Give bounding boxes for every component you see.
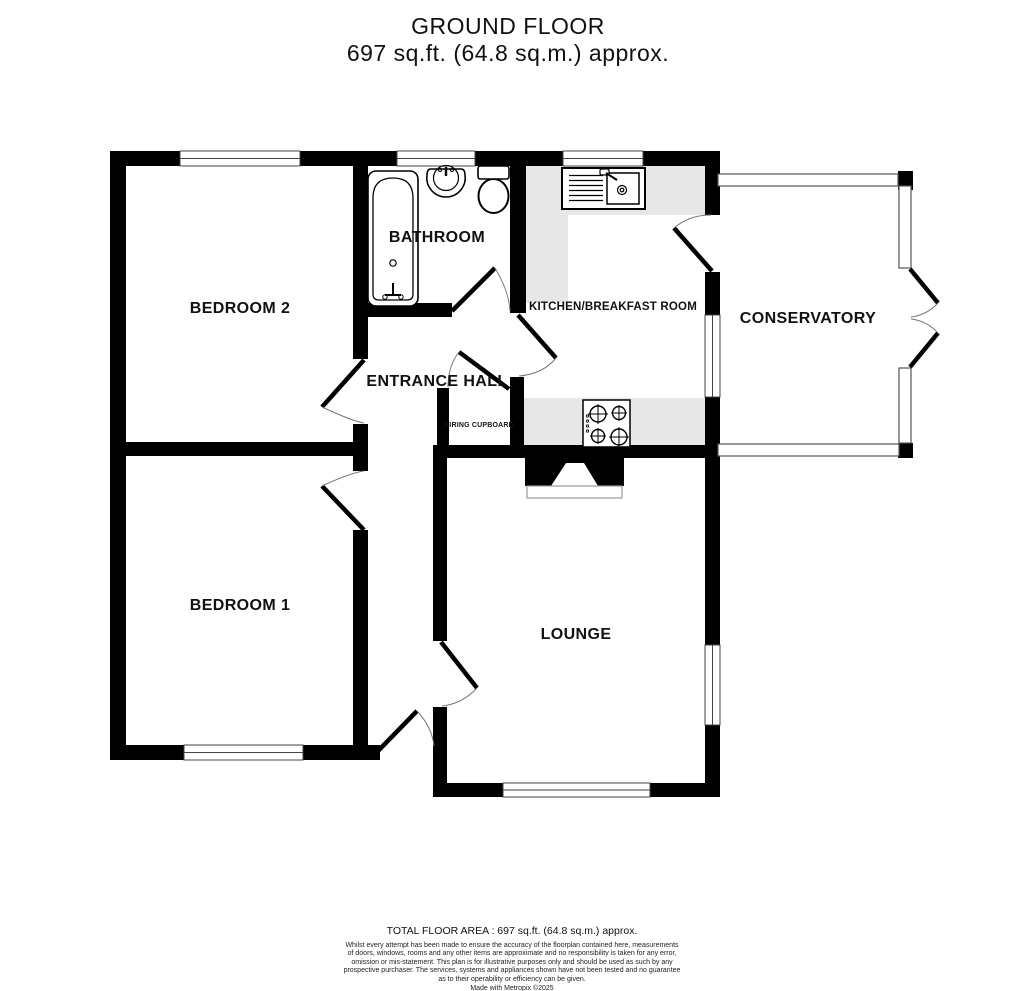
- door-conservatory: [674, 215, 712, 271]
- label-conservatory: CONSERVATORY: [740, 310, 876, 327]
- window-bedroom2: [180, 151, 300, 166]
- window-kitchen: [563, 151, 643, 166]
- window-bathroom: [397, 151, 475, 166]
- door-kitchen: [518, 315, 556, 376]
- door-bathroom: [452, 268, 510, 311]
- label-lounge: LOUNGE: [541, 626, 612, 643]
- window-lounge-east: [705, 645, 720, 725]
- hob-icon: [583, 400, 630, 447]
- total-floor-area: TOTAL FLOOR AREA : 697 sq.ft. (64.8 sq.m…: [0, 925, 1024, 937]
- windows: [180, 151, 720, 797]
- floorplan-page: GROUND FLOOR 697 sq.ft. (64.8 sq.m.) app…: [0, 0, 1024, 991]
- disclaimer-text: Whilst every attempt has been made to en…: [0, 942, 1024, 984]
- door-lounge: [441, 642, 477, 706]
- disclaimer-line: of doors, windows, rooms and any other i…: [0, 950, 1024, 958]
- label-entrance-hall: ENTRANCE HALL: [366, 373, 507, 390]
- door-bedroom2: [322, 360, 364, 423]
- label-bedroom2: BEDROOM 2: [190, 300, 291, 317]
- toilet-icon: [478, 166, 509, 213]
- window-kitchen-east: [705, 315, 720, 397]
- disclaimer-line: as to their operability or efficiency ca…: [0, 976, 1024, 984]
- label-bedroom1: BEDROOM 1: [190, 597, 291, 614]
- door-bedroom1: [322, 471, 364, 530]
- walls: [110, 151, 913, 797]
- disclaimer-line: Whilst every attempt has been made to en…: [0, 942, 1024, 950]
- kitchen-sink-icon: [562, 168, 645, 209]
- floorplan-drawing: BEDROOM 2 BATHROOM KITCHEN/BREAKFAST ROO…: [0, 0, 1024, 991]
- label-kitchen: KITCHEN/BREAKFAST ROOM: [529, 301, 697, 313]
- door-front-entrance: [377, 711, 434, 752]
- window-bedroom1: [184, 745, 303, 760]
- disclaimer-line: omission or mis-statement. This plan is …: [0, 959, 1024, 967]
- label-bathroom: BATHROOM: [389, 229, 485, 246]
- basin-icon: [427, 166, 465, 197]
- metropix-credit: Made with Metropix ©2025: [0, 984, 1024, 991]
- french-doors-conservatory: [910, 269, 938, 367]
- window-lounge-south: [503, 783, 650, 797]
- disclaimer-line: prospective purchaser. The services, sys…: [0, 967, 1024, 975]
- fireplace-icon: [525, 458, 624, 498]
- plan-footer: TOTAL FLOOR AREA : 697 sq.ft. (64.8 sq.m…: [0, 925, 1024, 991]
- label-airing-cupboard: AIRING CUPBOARD: [444, 422, 514, 429]
